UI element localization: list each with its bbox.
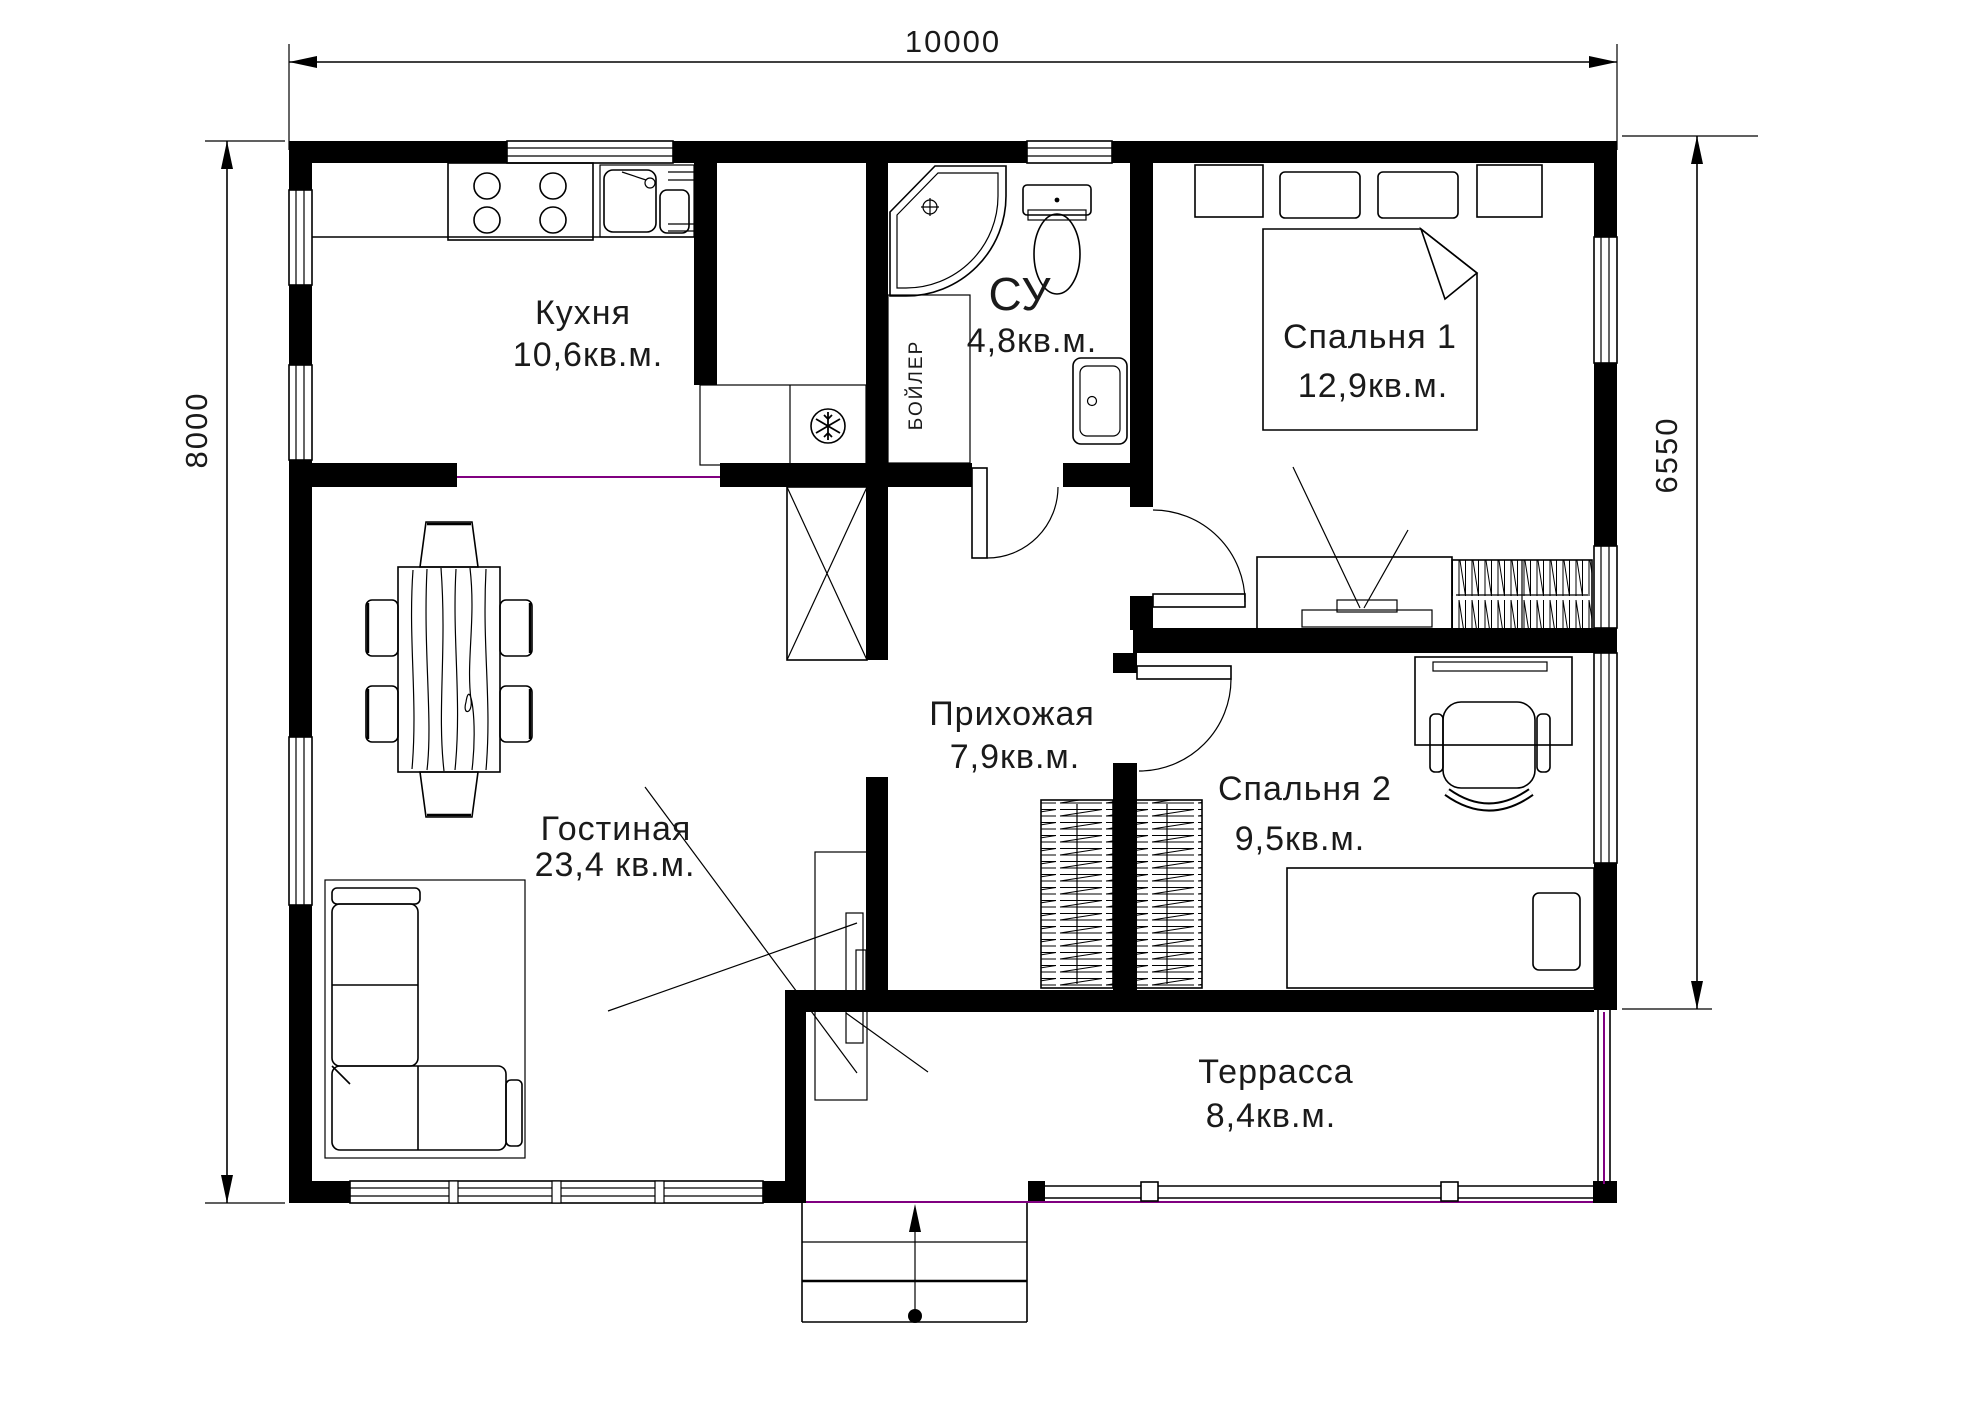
hallway-area-label: 7,9кв.м. <box>950 738 1080 776</box>
left-window-1-icon <box>289 190 312 285</box>
dining-table-icon <box>398 567 500 772</box>
dresser-tv-icon <box>1257 467 1452 630</box>
tv-unit-icon <box>815 852 867 1100</box>
bedroom1-door-arc <box>1153 510 1245 607</box>
bedroom2-door-arc <box>1137 666 1231 771</box>
stove-icon <box>448 163 593 240</box>
right-window-3-icon <box>1594 653 1617 863</box>
kitchen-label: Кухня <box>535 294 631 332</box>
dim-left: 8000 <box>179 141 285 1203</box>
living-area-label: 23,4 кв.м. <box>535 846 696 884</box>
nightstand-left-icon <box>1195 165 1263 217</box>
bathroom-door-arc <box>972 468 1058 558</box>
floor-plan-image: 10000 8000 6550 Кухня 10,6кв.м. СУ 4,8кв… <box>0 0 1984 1403</box>
left-window-3-icon <box>289 737 312 905</box>
fridge-nook <box>700 385 866 465</box>
dining-chair-right1-icon <box>500 600 532 656</box>
desk-icon <box>1415 657 1572 745</box>
fridge-icon <box>811 409 845 443</box>
kitchen-top-window-icon <box>507 141 673 163</box>
bedroom1-area-label: 12,9кв.м. <box>1298 367 1448 405</box>
bed2-icon <box>1287 868 1594 988</box>
right-window-1-icon <box>1594 237 1617 363</box>
dining-chair-bottom-icon <box>420 772 478 817</box>
floor-plan-canvas: 10000 8000 6550 Кухня 10,6кв.м. СУ 4,8кв… <box>0 0 1984 1403</box>
left-window-2-icon <box>289 365 312 460</box>
dim-top: 10000 <box>289 24 1617 150</box>
bathroom-top-window-icon <box>1027 141 1112 163</box>
dim-right: 6550 <box>1622 136 1758 1009</box>
dining-chair-left1-icon <box>366 600 398 656</box>
dining-chair-top-icon <box>420 522 478 567</box>
office-chair-icon <box>1430 702 1550 807</box>
bathroom-label: СУ <box>989 268 1052 320</box>
living-bottom-window-icon <box>350 1181 763 1203</box>
bedroom1-label: Спальня 1 <box>1283 318 1457 356</box>
entrance-arrow-icon <box>908 1204 922 1323</box>
right-window-2-icon <box>1594 546 1617 628</box>
terrace-area-label: 8,4кв.м. <box>1206 1097 1336 1135</box>
dining-chair-left2-icon <box>366 686 398 742</box>
wardrobe-bedroom2-icon <box>1133 800 1202 988</box>
boiler-closet <box>888 295 970 463</box>
wardrobe-bedroom1-icon <box>1452 560 1592 630</box>
bathroom-area-label: 4,8кв.м. <box>967 322 1097 360</box>
dim-left-label: 8000 <box>179 392 214 469</box>
washbasin-icon <box>1073 358 1127 444</box>
nightstand-right-icon <box>1477 165 1542 217</box>
living-label: Гостиная <box>541 810 692 848</box>
boiler-label: БОЙЛЕР <box>905 340 927 431</box>
hallway-label: Прихожая <box>929 695 1095 733</box>
sofa-icon <box>325 880 525 1158</box>
wardrobe-hall-icon <box>1041 800 1113 988</box>
terrace-label: Террасса <box>1198 1053 1353 1091</box>
closet-x-icon <box>787 487 867 660</box>
kitchen-area-label: 10,6кв.м. <box>513 336 663 374</box>
walls-group <box>289 141 1617 1203</box>
kitchen-sink-icon <box>600 165 694 237</box>
bedroom2-area-label: 9,5кв.м. <box>1235 820 1365 858</box>
bedroom2-label: Спальня 2 <box>1218 770 1392 808</box>
dim-top-label: 10000 <box>905 24 1001 59</box>
dim-right-label: 6550 <box>1649 417 1684 494</box>
windows-group <box>289 141 1617 1203</box>
dining-chair-right2-icon <box>500 686 532 742</box>
